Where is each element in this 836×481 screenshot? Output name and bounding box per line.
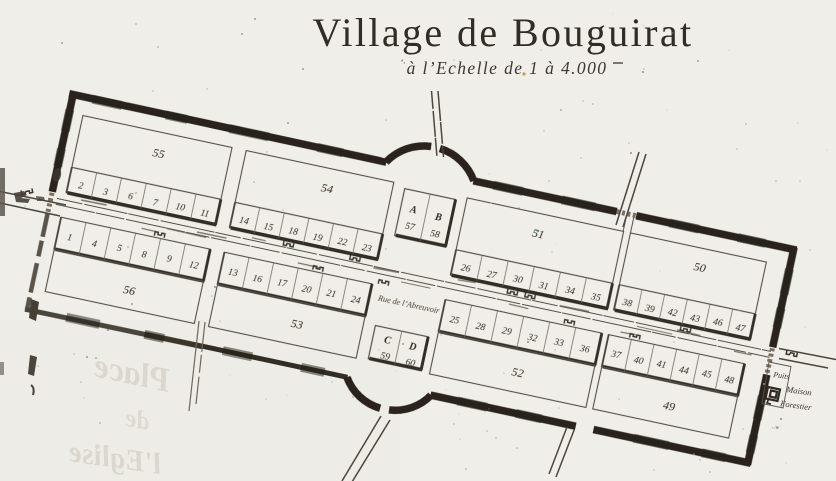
svg-text:’·: ’· xyxy=(400,58,405,68)
svg-text:de: de xyxy=(123,403,152,436)
svg-text:Village de Bouguirat: Village de Bouguirat xyxy=(312,10,693,55)
svg-text:à l’Echelle de 1 à 4.000: à l’Echelle de 1 à 4.000 xyxy=(407,58,608,78)
svg-text:..w: ..w xyxy=(772,424,780,431)
